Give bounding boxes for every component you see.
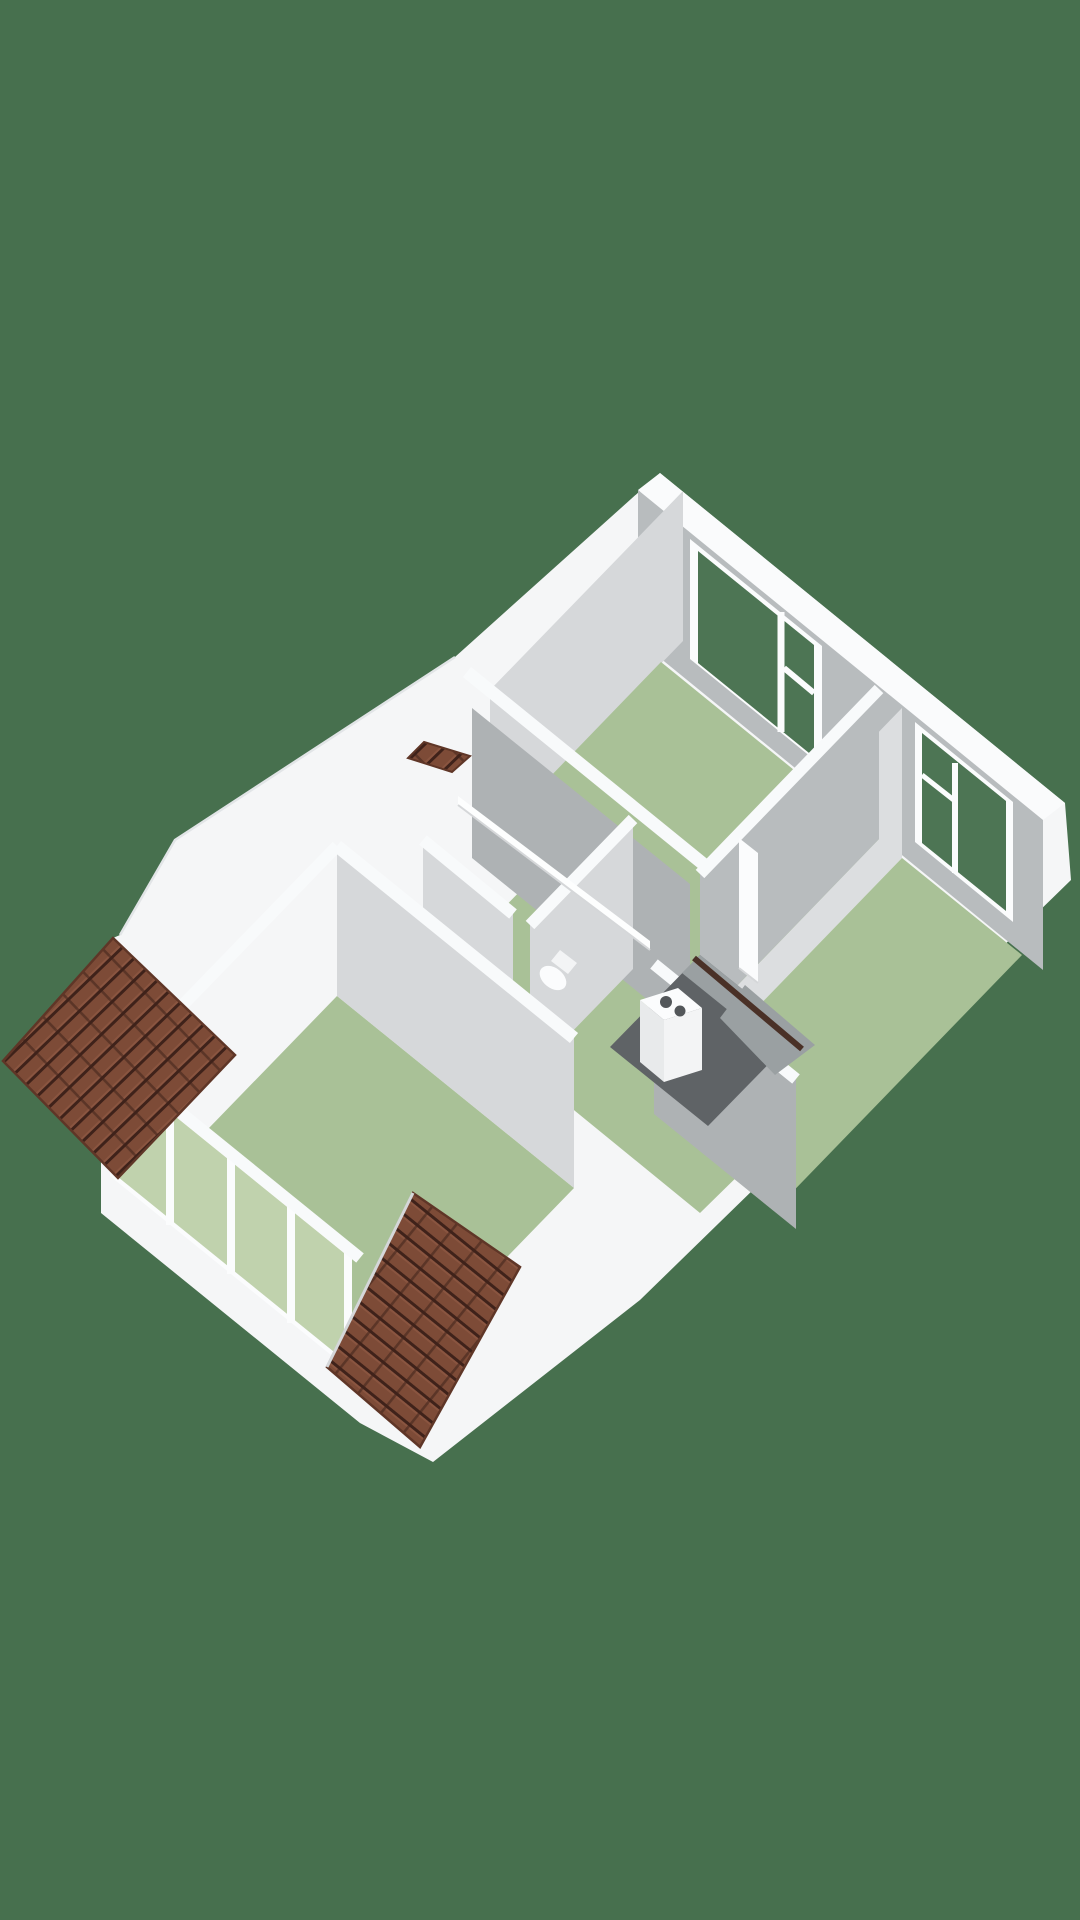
door-leaf-east-bedroom (739, 838, 758, 983)
boiler (640, 988, 702, 1082)
floorplan-3d-render (0, 0, 1080, 1920)
floorplan-stage (0, 0, 1080, 1920)
boiler-flue-2 (675, 1006, 686, 1017)
door-leaf (739, 838, 758, 983)
boiler-flue-1 (660, 996, 672, 1008)
boiler-right-face (664, 1008, 702, 1082)
